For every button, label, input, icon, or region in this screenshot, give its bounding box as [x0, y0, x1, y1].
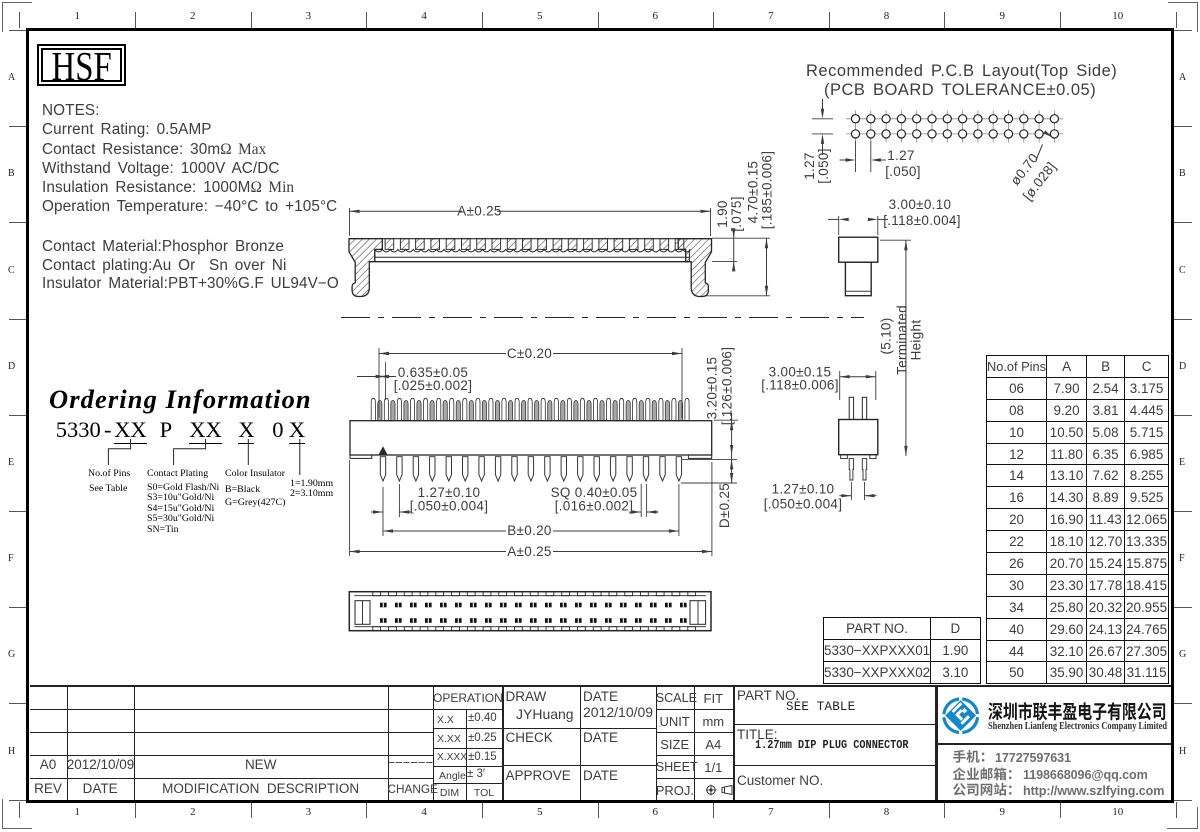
- svg-text:4.70±0.15: 4.70±0.15: [746, 161, 761, 224]
- svg-text:3.20±0.15: 3.20±0.15: [705, 357, 720, 420]
- svg-text:(5.10): (5.10): [879, 317, 894, 354]
- svg-text:B±0.20: B±0.20: [507, 523, 552, 538]
- svg-text:A±0.25: A±0.25: [457, 204, 502, 219]
- svg-text:[.118±0.004]: [.118±0.004]: [883, 213, 961, 228]
- svg-text:Terminated: Terminated: [895, 305, 910, 375]
- svg-text:[.118±0.006]: [.118±0.006]: [761, 378, 839, 393]
- svg-text:1.90: 1.90: [715, 200, 730, 227]
- svg-text:[.050±0.004]: [.050±0.004]: [764, 497, 843, 512]
- svg-text:1.27±0.10: 1.27±0.10: [772, 482, 835, 497]
- svg-text:[.050]: [.050]: [816, 148, 831, 184]
- svg-text:3.00±0.10: 3.00±0.10: [889, 197, 952, 212]
- svg-text:1.27: 1.27: [887, 148, 914, 163]
- svg-text:[.126±0.006]: [.126±0.006]: [720, 347, 735, 426]
- svg-text:[.016±0.002]: [.016±0.002]: [555, 499, 634, 514]
- svg-text:1.27: 1.27: [802, 152, 817, 179]
- svg-text:C±0.20: C±0.20: [507, 346, 552, 361]
- svg-text:Height: Height: [909, 320, 924, 361]
- svg-text:[.050]: [.050]: [885, 164, 921, 179]
- svg-text:[.050±0.004]: [.050±0.004]: [410, 499, 489, 514]
- svg-text:A±0.25: A±0.25: [507, 544, 552, 559]
- svg-text:[.075]: [.075]: [729, 196, 744, 232]
- svg-text:D±0.25: D±0.25: [717, 483, 732, 528]
- svg-text:[.025±0.002]: [.025±0.002]: [394, 378, 473, 393]
- svg-text:[.185±0.006]: [.185±0.006]: [760, 151, 775, 230]
